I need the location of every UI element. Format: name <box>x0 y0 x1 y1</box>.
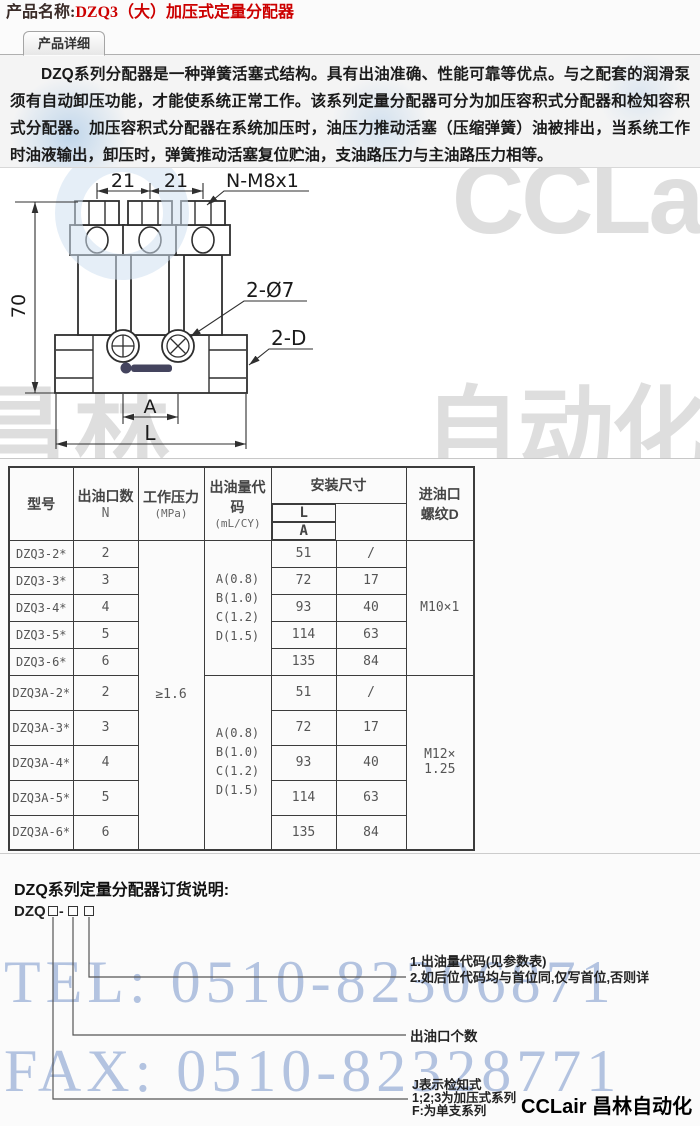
cell-a: 40 <box>336 594 406 621</box>
col-header-outlets-n: N <box>74 506 138 521</box>
annotation-series: J表示检知式 1;2;3为加压式系列 F:为单支系列 <box>412 1079 516 1118</box>
dim-70: 70 <box>8 294 30 318</box>
annotation-outlet-code-l2: 2.如后位代码均与首位同,仅写首位,否则详 <box>410 970 649 986</box>
dimension-drawing: 21 21 N-M8x1 70 2-Ø7 2-D A L <box>0 168 700 458</box>
cell-l: 135 <box>271 815 336 850</box>
cell-l: 72 <box>271 710 336 745</box>
cell-l: 135 <box>271 648 336 675</box>
cell-n: 6 <box>73 815 138 850</box>
cell-codes-group1: A(0.8) B(1.0) C(1.2) D(1.5) <box>204 540 271 675</box>
ordering-code-dash: - <box>59 903 64 919</box>
cell-n: 2 <box>73 540 138 567</box>
cell-a: 63 <box>336 780 406 815</box>
cell-l: 51 <box>271 675 336 710</box>
cell-model: DZQ3-4* <box>9 594 73 621</box>
product-description: DZQ系列分配器是一种弹簧活塞式结构。具有出油准确、性能可靠等优点。与之配套的润… <box>0 55 700 168</box>
col-header-inlet-l2: 螺纹D <box>421 506 459 522</box>
tab-product-detail[interactable]: 产品详细 <box>23 31 105 56</box>
cell-n: 3 <box>73 567 138 594</box>
cell-n: 5 <box>73 621 138 648</box>
cell-l: 93 <box>271 594 336 621</box>
cell-a: 63 <box>336 621 406 648</box>
cell-a: 17 <box>336 567 406 594</box>
cell-model: DZQ3-6* <box>9 648 73 675</box>
cell-codes-group2: A(0.8) B(1.0) C(1.2) D(1.5) <box>204 675 271 850</box>
annotation-series-l3: F:为单支系列 <box>412 1105 516 1118</box>
ordering-code-prefix: DZQ <box>14 903 46 920</box>
col-header-l: L <box>272 504 337 522</box>
cell-n: 5 <box>73 780 138 815</box>
code-box-1 <box>48 906 58 916</box>
cell-a: 40 <box>336 745 406 780</box>
cell-a: 84 <box>336 648 406 675</box>
annotation-outlet-code: 1.出油量代码(见参数表) 2.如后位代码均与首位同,仅写首位,否则详 <box>410 954 649 986</box>
dim-l: L <box>144 421 156 445</box>
col-header-code-l1: 出油量代 <box>210 479 266 495</box>
cell-model: DZQ3A-5* <box>9 780 73 815</box>
cell-n: 4 <box>73 745 138 780</box>
cell-l: 51 <box>271 540 336 567</box>
dim-21-right: 21 <box>164 170 188 192</box>
cell-model: DZQ3-3* <box>9 567 73 594</box>
cell-model: DZQ3A-6* <box>9 815 73 850</box>
col-header-code-l2: 码 <box>231 499 245 515</box>
col-header-inlet-l1: 进油口 <box>419 486 461 502</box>
col-header-code-unit: (mL/CY) <box>205 517 271 530</box>
cell-n: 4 <box>73 594 138 621</box>
cell-a: / <box>336 675 406 710</box>
cell-model: DZQ3A-2* <box>9 675 73 710</box>
tab-product-detail-label: 产品详细 <box>38 36 90 51</box>
table-row: DZQ3-2* 2 ≥1.6 A(0.8) B(1.0) C(1.2) D(1.… <box>9 540 474 567</box>
manifold-body <box>55 335 247 393</box>
cell-l: 72 <box>271 567 336 594</box>
dim-2-d: 2-D <box>271 326 306 350</box>
ordering-heading: DZQ系列定量分配器订货说明: <box>14 876 229 900</box>
cell-n: 6 <box>73 648 138 675</box>
col-header-model: 型号 <box>9 467 73 540</box>
col-header-mount: 安装尺寸 <box>271 467 406 503</box>
page-title-label: 产品名称: <box>6 4 75 21</box>
cell-a: 17 <box>336 710 406 745</box>
col-header-outlets: 出油口数 N <box>73 467 138 540</box>
cell-pressure: ≥1.6 <box>138 540 204 850</box>
cell-model: DZQ3A-3* <box>9 710 73 745</box>
annotation-outlet-code-l1: 1.出油量代码(见参数表) <box>410 954 649 970</box>
cell-a: / <box>336 540 406 567</box>
annotation-outlet-count: 出油口个数 <box>410 1029 478 1045</box>
dim-n-m8x1: N-M8x1 <box>226 170 299 192</box>
spec-table: 型号 出油口数 N 工作压力 (MPa) 出油量代 码 (mL/CY) 安装尺寸… <box>8 466 475 851</box>
cell-model: DZQ3-2* <box>9 540 73 567</box>
code-box-3 <box>84 906 94 916</box>
cell-n: 3 <box>73 710 138 745</box>
dim-2-d7: 2-Ø7 <box>246 278 294 302</box>
cell-l: 114 <box>271 621 336 648</box>
page-title-value: DZQ3（大）加压式定量分配器 <box>75 4 294 21</box>
cell-n: 2 <box>73 675 138 710</box>
col-header-a: A <box>272 522 337 540</box>
col-header-pressure: 工作压力 (MPa) <box>138 467 204 540</box>
cell-thread-group1: M10×1 <box>406 540 474 675</box>
page-title: 产品名称:DZQ3（大）加压式定量分配器 <box>6 3 294 23</box>
dim-21-left: 21 <box>111 170 135 192</box>
col-header-pressure-unit: (MPa) <box>139 507 204 520</box>
technical-drawing-area: CCLair 昌林 自动化 <box>0 168 700 459</box>
col-header-inlet: 进油口 螺纹D <box>406 467 474 540</box>
cell-model: DZQ3-5* <box>9 621 73 648</box>
cell-a: 84 <box>336 815 406 850</box>
dim-a: A <box>144 396 157 418</box>
table-row: DZQ3A-2* 2 A(0.8) B(1.0) C(1.2) D(1.5) 5… <box>9 675 474 710</box>
col-header-outlets-cn: 出油口数 <box>78 488 134 504</box>
col-header-pressure-cn: 工作压力 <box>143 489 199 505</box>
cell-thread-group2: M12× 1.25 <box>406 675 474 850</box>
col-header-code: 出油量代 码 (mL/CY) <box>204 467 271 540</box>
code-box-2 <box>68 906 78 916</box>
cell-l: 93 <box>271 745 336 780</box>
brand-footer: CCLair 昌林自动化 <box>521 1090 692 1119</box>
cell-model: DZQ3A-4* <box>9 745 73 780</box>
cell-l: 114 <box>271 780 336 815</box>
